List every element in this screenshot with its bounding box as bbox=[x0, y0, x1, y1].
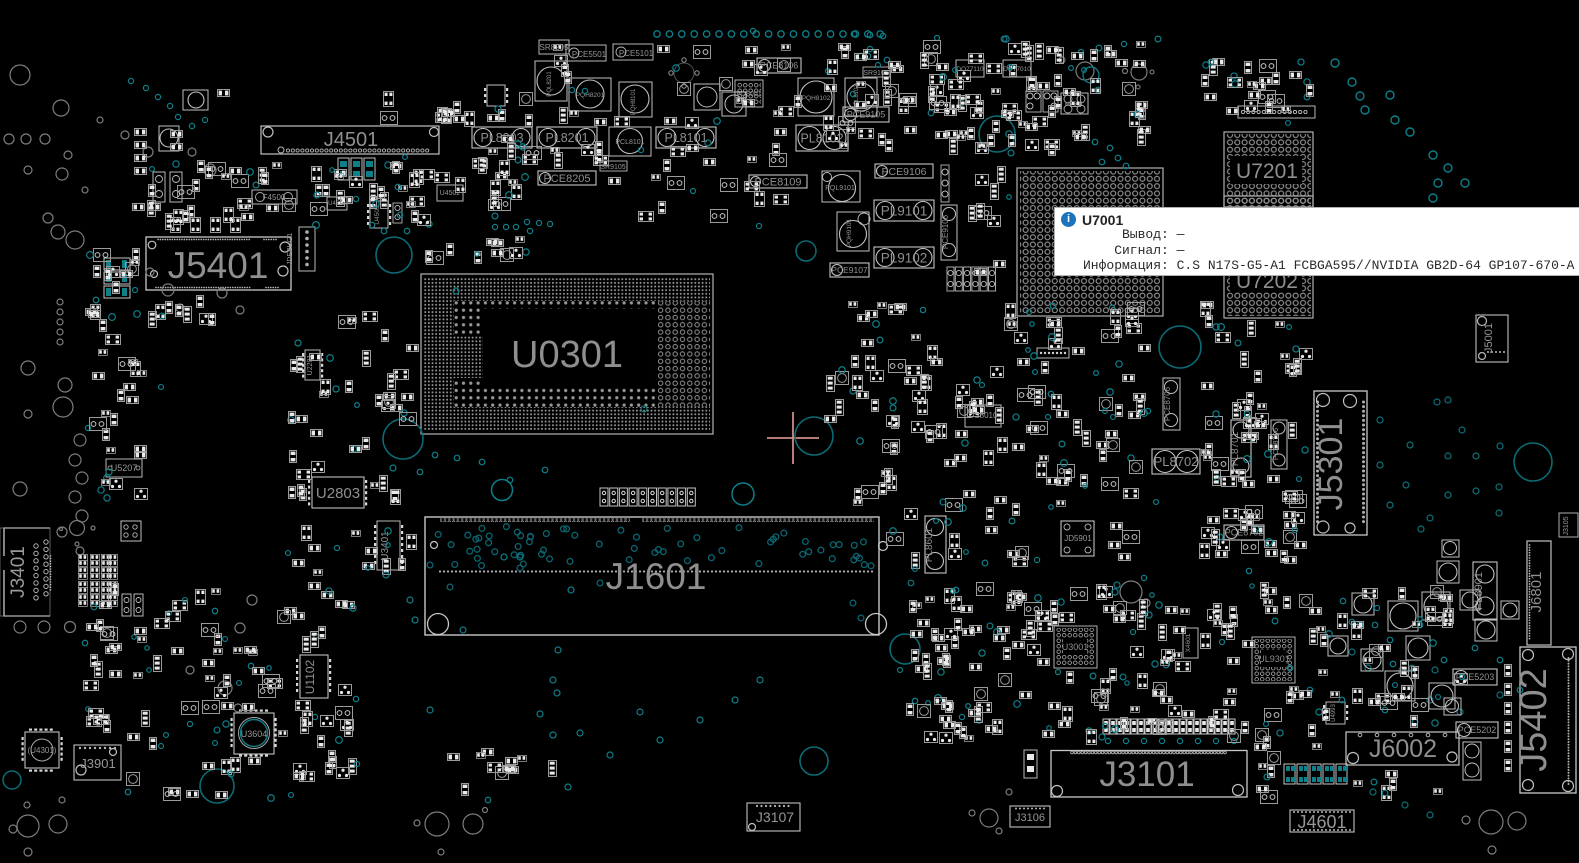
svg-text:PL8601: PL8601 bbox=[924, 527, 935, 562]
svg-text:J3101: J3101 bbox=[1099, 755, 1194, 794]
svg-text:PQH8101: PQH8101 bbox=[631, 88, 637, 115]
svg-text:PCE9106: PCE9106 bbox=[941, 214, 950, 249]
svg-text:PQL9101: PQL9101 bbox=[825, 185, 855, 192]
svg-text:U4503: U4503 bbox=[374, 205, 381, 225]
svg-text:U4993: U4993 bbox=[1331, 704, 1337, 722]
svg-text:J3107: J3107 bbox=[756, 809, 794, 825]
svg-text:U7201: U7201 bbox=[1236, 160, 1298, 183]
svg-text:JDEBUG1: JDEBUG1 bbox=[287, 233, 294, 265]
svg-text:PQH8102: PQH8102 bbox=[802, 95, 831, 102]
svg-text:PL9102: PL9102 bbox=[881, 250, 928, 265]
svg-text:PL8901: PL8901 bbox=[1473, 572, 1485, 610]
svg-text:PL8701: PL8701 bbox=[1230, 431, 1241, 466]
svg-text:PCE8106: PCE8106 bbox=[760, 61, 799, 71]
svg-text:J4501: J4501 bbox=[324, 129, 379, 151]
svg-text:PCE5501: PCE5501 bbox=[572, 50, 607, 59]
svg-text:X4601: X4601 bbox=[1185, 633, 1192, 652]
svg-text:PCE8205: PCE8205 bbox=[543, 173, 590, 185]
svg-text:PCE8706: PCE8706 bbox=[1163, 386, 1172, 421]
svg-text:PCE9107: PCE9107 bbox=[831, 265, 868, 275]
svg-text:J3401: J3401 bbox=[8, 546, 29, 598]
svg-text:J4601: J4601 bbox=[1297, 812, 1346, 832]
svg-text:U0301: U0301 bbox=[511, 334, 623, 376]
svg-text:PL8101: PL8101 bbox=[664, 131, 707, 145]
svg-text:PQL8201: PQL8201 bbox=[547, 71, 553, 97]
svg-text:U4502: U4502 bbox=[440, 190, 461, 197]
svg-text:(U4301): (U4301) bbox=[28, 746, 57, 755]
svg-text:J5401: J5401 bbox=[168, 245, 269, 286]
svg-text:J1601: J1601 bbox=[606, 556, 707, 597]
svg-text:PCE9106: PCE9106 bbox=[882, 166, 927, 178]
svg-text:PCE8109: PCE8109 bbox=[754, 176, 801, 188]
svg-text:U5207: U5207 bbox=[111, 463, 138, 473]
svg-text:J3105: J3105 bbox=[1563, 516, 1570, 535]
svg-text:JD5901: JD5901 bbox=[1064, 534, 1092, 543]
svg-text:PQH9101: PQH9101 bbox=[846, 218, 853, 247]
svg-text:PCE5101: PCE5101 bbox=[619, 49, 654, 58]
svg-text:J6002: J6002 bbox=[1369, 735, 1437, 763]
svg-text:U3604: U3604 bbox=[241, 729, 268, 739]
svg-text:J5001: J5001 bbox=[1483, 323, 1495, 353]
svg-text:PL8201: PL8201 bbox=[545, 131, 588, 145]
svg-text:PCL8101: PCL8101 bbox=[615, 139, 644, 146]
svg-text:J6801: J6801 bbox=[1528, 572, 1545, 613]
svg-text:J3901: J3901 bbox=[80, 756, 115, 771]
svg-text:UL9301: UL9301 bbox=[1258, 654, 1290, 664]
svg-text:PL9101: PL9101 bbox=[881, 203, 928, 218]
svg-text:J5301: J5301 bbox=[1312, 418, 1350, 511]
svg-text:U3001: U3001 bbox=[1062, 642, 1089, 652]
svg-text:U1102: U1102 bbox=[303, 659, 317, 694]
svg-text:U2803: U2803 bbox=[316, 485, 360, 502]
svg-text:J3106: J3106 bbox=[1015, 812, 1045, 824]
svg-text:PQH8201: PQH8201 bbox=[576, 92, 605, 99]
svg-text:PCE9105: PCE9105 bbox=[847, 110, 886, 120]
svg-text:J5402: J5402 bbox=[1513, 668, 1555, 772]
svg-text:PL8702: PL8702 bbox=[1154, 454, 1199, 469]
svg-text:PCE5202: PCE5202 bbox=[1458, 725, 1497, 735]
